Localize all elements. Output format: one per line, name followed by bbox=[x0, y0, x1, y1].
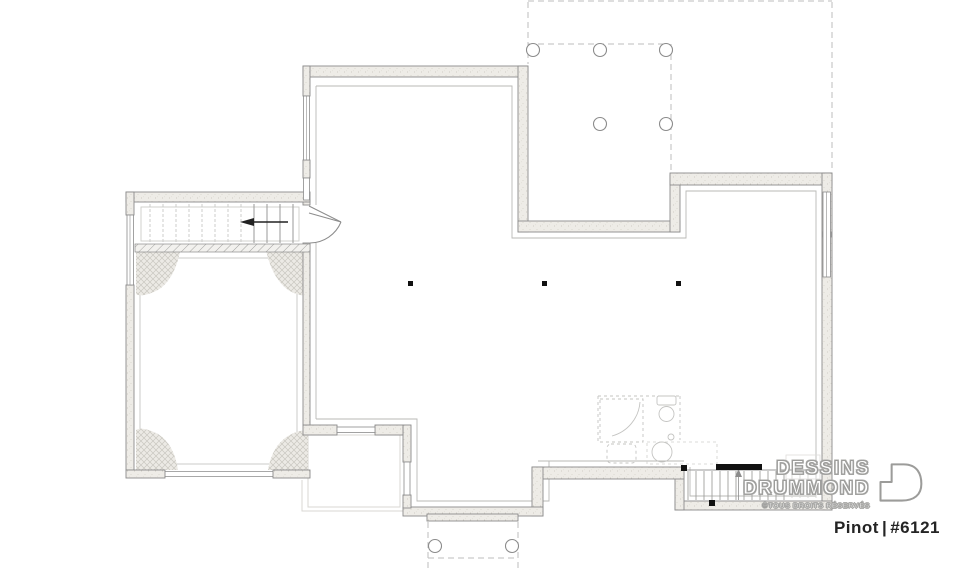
plan-separator: | bbox=[879, 518, 890, 537]
deck-dashed-outline bbox=[528, 1, 832, 173]
main-staircase bbox=[150, 204, 293, 243]
plan-name: Pinot bbox=[834, 518, 879, 537]
exterior-walls bbox=[126, 66, 832, 521]
garage-footings bbox=[136, 250, 308, 470]
windows bbox=[127, 96, 831, 495]
door-swing bbox=[309, 206, 341, 243]
inner-wall-lines bbox=[140, 86, 816, 501]
porch-posts bbox=[429, 540, 519, 553]
plan-title: Pinot|#6121 bbox=[780, 518, 940, 538]
floor-plan-page: { "brand": { "line1": "DESSINS", "line2"… bbox=[0, 0, 960, 569]
bathroom-rough-in bbox=[598, 396, 680, 463]
drummond-house-icon bbox=[874, 456, 926, 508]
support-posts bbox=[408, 281, 681, 286]
plan-number: #6121 bbox=[890, 518, 940, 537]
floor-plan-drawing bbox=[0, 0, 960, 569]
apron-lines bbox=[302, 435, 410, 511]
deck-posts bbox=[527, 44, 673, 131]
hatched-wall bbox=[135, 244, 310, 252]
stair-direction-arrow bbox=[240, 218, 288, 226]
